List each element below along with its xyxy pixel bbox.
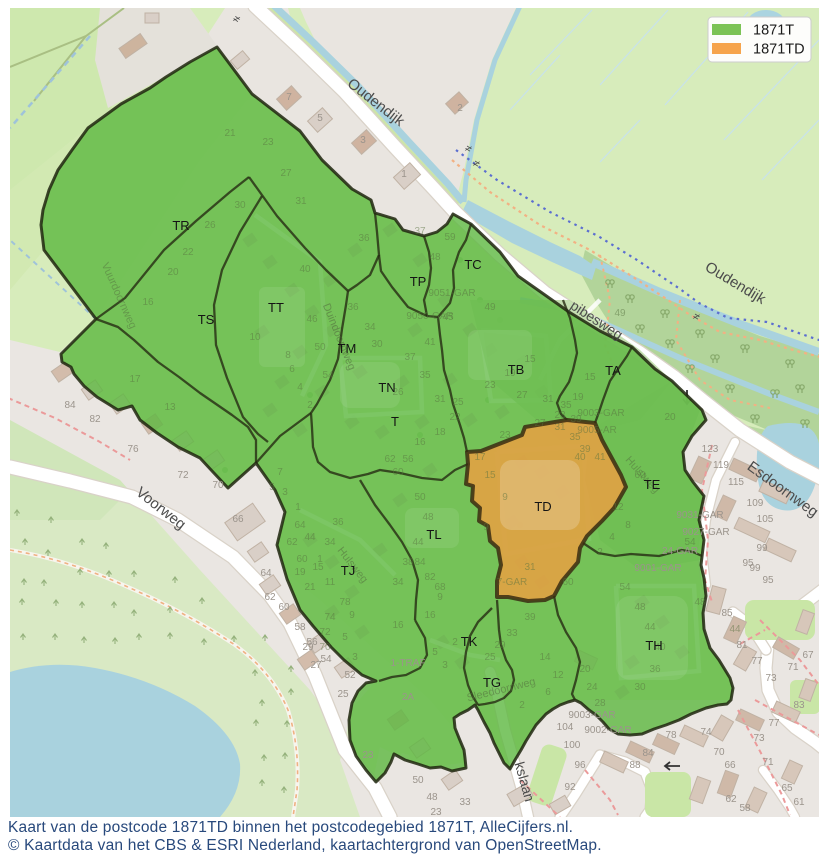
svg-text:50: 50 — [314, 342, 326, 353]
svg-text:46: 46 — [306, 314, 318, 325]
svg-text:72: 72 — [177, 470, 189, 481]
svg-text:73: 73 — [753, 733, 765, 744]
svg-text:25: 25 — [337, 689, 349, 700]
svg-text:48: 48 — [429, 252, 441, 263]
svg-text:99: 99 — [749, 563, 761, 574]
svg-text:25: 25 — [452, 397, 464, 408]
svg-text:6: 6 — [289, 364, 295, 375]
svg-text:16: 16 — [392, 620, 404, 631]
svg-text:23: 23 — [484, 380, 496, 391]
svg-text:9: 9 — [483, 522, 489, 533]
svg-text:92: 92 — [564, 782, 576, 793]
svg-text:26: 26 — [204, 220, 216, 231]
svg-text:60: 60 — [562, 577, 574, 588]
svg-text:4: 4 — [297, 382, 303, 393]
svg-text:60: 60 — [278, 602, 290, 613]
svg-text:50: 50 — [414, 492, 426, 503]
svg-text:39: 39 — [524, 612, 536, 623]
svg-text:21: 21 — [224, 128, 236, 139]
svg-text:TN: TN — [378, 380, 395, 395]
svg-text:62: 62 — [286, 537, 298, 548]
svg-text:85: 85 — [721, 608, 733, 619]
svg-text:84: 84 — [414, 557, 426, 568]
svg-text:99: 99 — [756, 543, 768, 554]
svg-text:29: 29 — [302, 642, 314, 653]
svg-text:37: 37 — [414, 226, 426, 237]
svg-text:115: 115 — [728, 477, 744, 488]
svg-text:27: 27 — [280, 168, 292, 179]
svg-text:22: 22 — [182, 247, 194, 258]
svg-text:16: 16 — [414, 437, 426, 448]
svg-text:44: 44 — [412, 537, 424, 548]
svg-text:17: 17 — [474, 452, 486, 463]
svg-text:40: 40 — [574, 452, 586, 463]
svg-text:62: 62 — [264, 592, 276, 603]
svg-text:54: 54 — [619, 582, 631, 593]
svg-text:9051-GAR: 9051-GAR — [428, 288, 475, 299]
svg-text:71: 71 — [787, 662, 799, 673]
svg-text:44: 44 — [729, 624, 741, 635]
svg-text:19: 19 — [572, 392, 584, 403]
svg-text:1871TD: 1871TD — [753, 42, 805, 58]
svg-text:64: 64 — [260, 568, 272, 579]
svg-text:TS: TS — [198, 312, 215, 327]
svg-text:9027-GAR: 9027-GAR — [682, 527, 729, 538]
svg-text:58: 58 — [294, 622, 306, 633]
svg-text:9: 9 — [437, 592, 443, 603]
svg-text:34: 34 — [392, 577, 404, 588]
svg-text:T: T — [391, 414, 399, 429]
svg-text:24-GAR: 24-GAR — [662, 546, 698, 557]
svg-text:12: 12 — [612, 502, 624, 513]
svg-text:44: 44 — [304, 532, 316, 543]
svg-text:84: 84 — [64, 400, 76, 411]
svg-text:72: 72 — [319, 627, 331, 638]
svg-text:81: 81 — [736, 640, 748, 651]
svg-text:TK: TK — [461, 634, 478, 649]
svg-text:23: 23 — [262, 137, 274, 148]
svg-text:25: 25 — [484, 652, 496, 663]
svg-text:95: 95 — [762, 575, 774, 586]
svg-text:9001-GAR: 9001-GAR — [634, 563, 681, 574]
svg-text:14: 14 — [539, 652, 551, 663]
svg-text:Kaart van de postcode 1871TD b: Kaart van de postcode 1871TD binnen het … — [8, 819, 573, 836]
svg-text:TB: TB — [508, 362, 525, 377]
svg-text:44: 44 — [644, 622, 656, 633]
svg-text:29: 29 — [494, 640, 506, 651]
svg-text:9002-GAR: 9002-GAR — [584, 725, 631, 736]
svg-text:70: 70 — [212, 480, 224, 491]
svg-text:36: 36 — [332, 517, 344, 528]
svg-text:20: 20 — [664, 412, 676, 423]
svg-text:109: 109 — [747, 498, 764, 509]
svg-text:2: 2 — [519, 700, 525, 711]
svg-text:48: 48 — [422, 512, 434, 523]
svg-text:27: 27 — [534, 418, 546, 429]
svg-text:52: 52 — [344, 670, 356, 681]
svg-text:74: 74 — [324, 612, 336, 623]
svg-text:61: 61 — [793, 797, 805, 808]
svg-text:5: 5 — [269, 482, 275, 493]
svg-text:82: 82 — [89, 414, 101, 425]
svg-text:7: 7 — [277, 467, 283, 478]
svg-text:TR: TR — [172, 218, 189, 233]
svg-text:5: 5 — [432, 647, 438, 658]
svg-text:TT: TT — [268, 300, 284, 315]
svg-text:TP: TP — [410, 274, 427, 289]
svg-text:TJ: TJ — [341, 563, 355, 578]
svg-text:1: 1 — [401, 169, 407, 180]
svg-text:78: 78 — [339, 597, 351, 608]
svg-text:15: 15 — [484, 470, 496, 481]
svg-text:48: 48 — [694, 597, 706, 608]
svg-text:48: 48 — [426, 792, 438, 803]
svg-text:1-TRAF: 1-TRAF — [391, 658, 426, 669]
svg-text:9003-GAR: 9003-GAR — [577, 408, 624, 419]
svg-text:TM: TM — [338, 341, 357, 356]
svg-text:66: 66 — [724, 760, 736, 771]
svg-text:3: 3 — [282, 487, 288, 498]
svg-text:50: 50 — [412, 775, 424, 786]
svg-text:2A: 2A — [402, 692, 415, 703]
svg-text:33: 33 — [506, 628, 518, 639]
svg-text:60: 60 — [392, 467, 404, 478]
svg-text:22: 22 — [449, 412, 461, 423]
svg-text:58: 58 — [739, 803, 751, 814]
svg-text:9: 9 — [349, 610, 355, 621]
svg-text:1: 1 — [317, 554, 323, 565]
svg-text:18: 18 — [434, 427, 446, 438]
svg-text:2: 2 — [597, 547, 603, 558]
svg-text:16: 16 — [424, 610, 436, 621]
svg-text:34: 34 — [364, 322, 376, 333]
svg-text:88: 88 — [629, 760, 641, 771]
svg-text:28: 28 — [594, 698, 606, 709]
svg-text:3: 3 — [442, 660, 448, 671]
svg-text:70: 70 — [713, 747, 725, 758]
svg-text:17: 17 — [129, 374, 141, 385]
svg-text:66: 66 — [232, 514, 244, 525]
svg-text:8: 8 — [625, 520, 631, 531]
svg-text:37: 37 — [404, 352, 416, 363]
svg-text:105: 105 — [757, 514, 774, 525]
svg-text:TG: TG — [483, 675, 501, 690]
svg-text:71: 71 — [762, 757, 774, 768]
svg-text:15: 15 — [524, 354, 536, 365]
svg-text:27: 27 — [516, 390, 528, 401]
svg-text:83: 83 — [793, 700, 805, 711]
svg-text:41: 41 — [594, 452, 606, 463]
svg-text:23: 23 — [499, 430, 511, 441]
svg-text:9: 9 — [502, 492, 508, 503]
svg-text:123: 123 — [702, 444, 719, 455]
svg-text:31: 31 — [524, 562, 536, 573]
svg-text:16: 16 — [142, 297, 154, 308]
svg-text:TH: TH — [645, 638, 662, 653]
svg-text:4: 4 — [609, 532, 615, 543]
svg-text:41: 41 — [424, 337, 436, 348]
svg-text:9003-GAR: 9003-GAR — [568, 710, 615, 721]
svg-text:49: 49 — [484, 302, 496, 313]
svg-text:64: 64 — [294, 520, 306, 531]
svg-text:96: 96 — [574, 760, 586, 771]
svg-text:2: 2 — [452, 637, 458, 648]
svg-text:15: 15 — [584, 372, 596, 383]
svg-text:3: 3 — [352, 652, 358, 663]
svg-text:38: 38 — [402, 557, 414, 568]
svg-text:77: 77 — [768, 718, 780, 729]
svg-text:9031-GAR: 9031-GAR — [676, 510, 723, 521]
svg-text:30: 30 — [634, 682, 646, 693]
svg-text:33: 33 — [459, 797, 471, 808]
svg-text:30: 30 — [234, 200, 246, 211]
svg-text:119: 119 — [713, 460, 729, 471]
svg-text:5: 5 — [342, 632, 348, 643]
svg-text:73: 73 — [765, 673, 777, 684]
svg-text:35: 35 — [560, 400, 572, 411]
svg-text:23: 23 — [430, 807, 442, 818]
svg-text:5: 5 — [317, 113, 323, 124]
svg-text:TA: TA — [605, 363, 621, 378]
svg-text:59: 59 — [444, 232, 456, 243]
svg-text:20: 20 — [167, 267, 179, 278]
svg-text:60: 60 — [296, 554, 308, 565]
svg-text:31: 31 — [554, 422, 566, 433]
svg-text:54: 54 — [320, 654, 332, 665]
svg-text:8: 8 — [285, 350, 291, 361]
svg-text:70: 70 — [319, 642, 331, 653]
svg-text:23: 23 — [554, 410, 566, 421]
svg-text:6: 6 — [545, 687, 551, 698]
svg-text:27: 27 — [310, 660, 322, 671]
svg-text:10: 10 — [249, 332, 261, 343]
svg-text:36: 36 — [649, 664, 661, 675]
svg-text:3: 3 — [360, 135, 366, 146]
svg-text:36: 36 — [347, 302, 359, 313]
svg-text:7-GAR: 7-GAR — [497, 577, 528, 588]
svg-text:TL: TL — [426, 527, 441, 542]
svg-text:36: 36 — [358, 233, 370, 244]
svg-text:65: 65 — [781, 783, 793, 794]
svg-text:12: 12 — [552, 670, 564, 681]
svg-text:34: 34 — [324, 537, 336, 548]
svg-text:© Kaartdata van het CBS & ESRI: © Kaartdata van het CBS & ESRI Nederland… — [8, 837, 602, 854]
svg-text:TC: TC — [464, 257, 481, 272]
svg-text:76: 76 — [127, 444, 139, 455]
svg-text:13: 13 — [164, 402, 176, 413]
svg-text:1: 1 — [295, 502, 301, 513]
svg-text:9050-GAR: 9050-GAR — [406, 311, 453, 322]
svg-text:100: 100 — [564, 740, 581, 751]
svg-text:104: 104 — [557, 722, 574, 733]
svg-text:56: 56 — [402, 454, 414, 465]
svg-text:TD: TD — [534, 499, 551, 514]
svg-text:19: 19 — [294, 567, 306, 578]
svg-text:20: 20 — [579, 664, 591, 675]
svg-text:9005-AR: 9005-AR — [577, 425, 616, 436]
svg-text:62: 62 — [725, 794, 737, 805]
svg-text:78: 78 — [665, 730, 677, 741]
svg-text:35: 35 — [419, 370, 431, 381]
svg-text:40: 40 — [299, 264, 311, 275]
svg-text:62: 62 — [384, 454, 396, 465]
svg-text:67: 67 — [802, 650, 814, 661]
svg-text:84: 84 — [642, 748, 654, 759]
svg-text:74: 74 — [700, 727, 712, 738]
svg-text:11: 11 — [325, 577, 336, 588]
svg-text:31: 31 — [295, 196, 307, 207]
svg-text:21: 21 — [304, 582, 316, 593]
svg-text:TE: TE — [644, 477, 661, 492]
svg-text:31: 31 — [542, 394, 554, 405]
svg-text:2: 2 — [307, 400, 313, 411]
svg-text:7: 7 — [286, 92, 292, 103]
svg-text:77: 77 — [751, 656, 763, 667]
svg-text:24: 24 — [586, 682, 598, 693]
svg-text:23: 23 — [362, 750, 374, 761]
svg-text:48: 48 — [634, 602, 646, 613]
svg-text:49: 49 — [614, 308, 626, 319]
svg-text:54: 54 — [322, 370, 334, 381]
svg-text:68: 68 — [434, 582, 446, 593]
svg-text:2: 2 — [457, 103, 463, 114]
svg-text:31: 31 — [434, 394, 446, 405]
svg-text:30: 30 — [371, 339, 383, 350]
svg-text:1871T: 1871T — [753, 23, 794, 39]
